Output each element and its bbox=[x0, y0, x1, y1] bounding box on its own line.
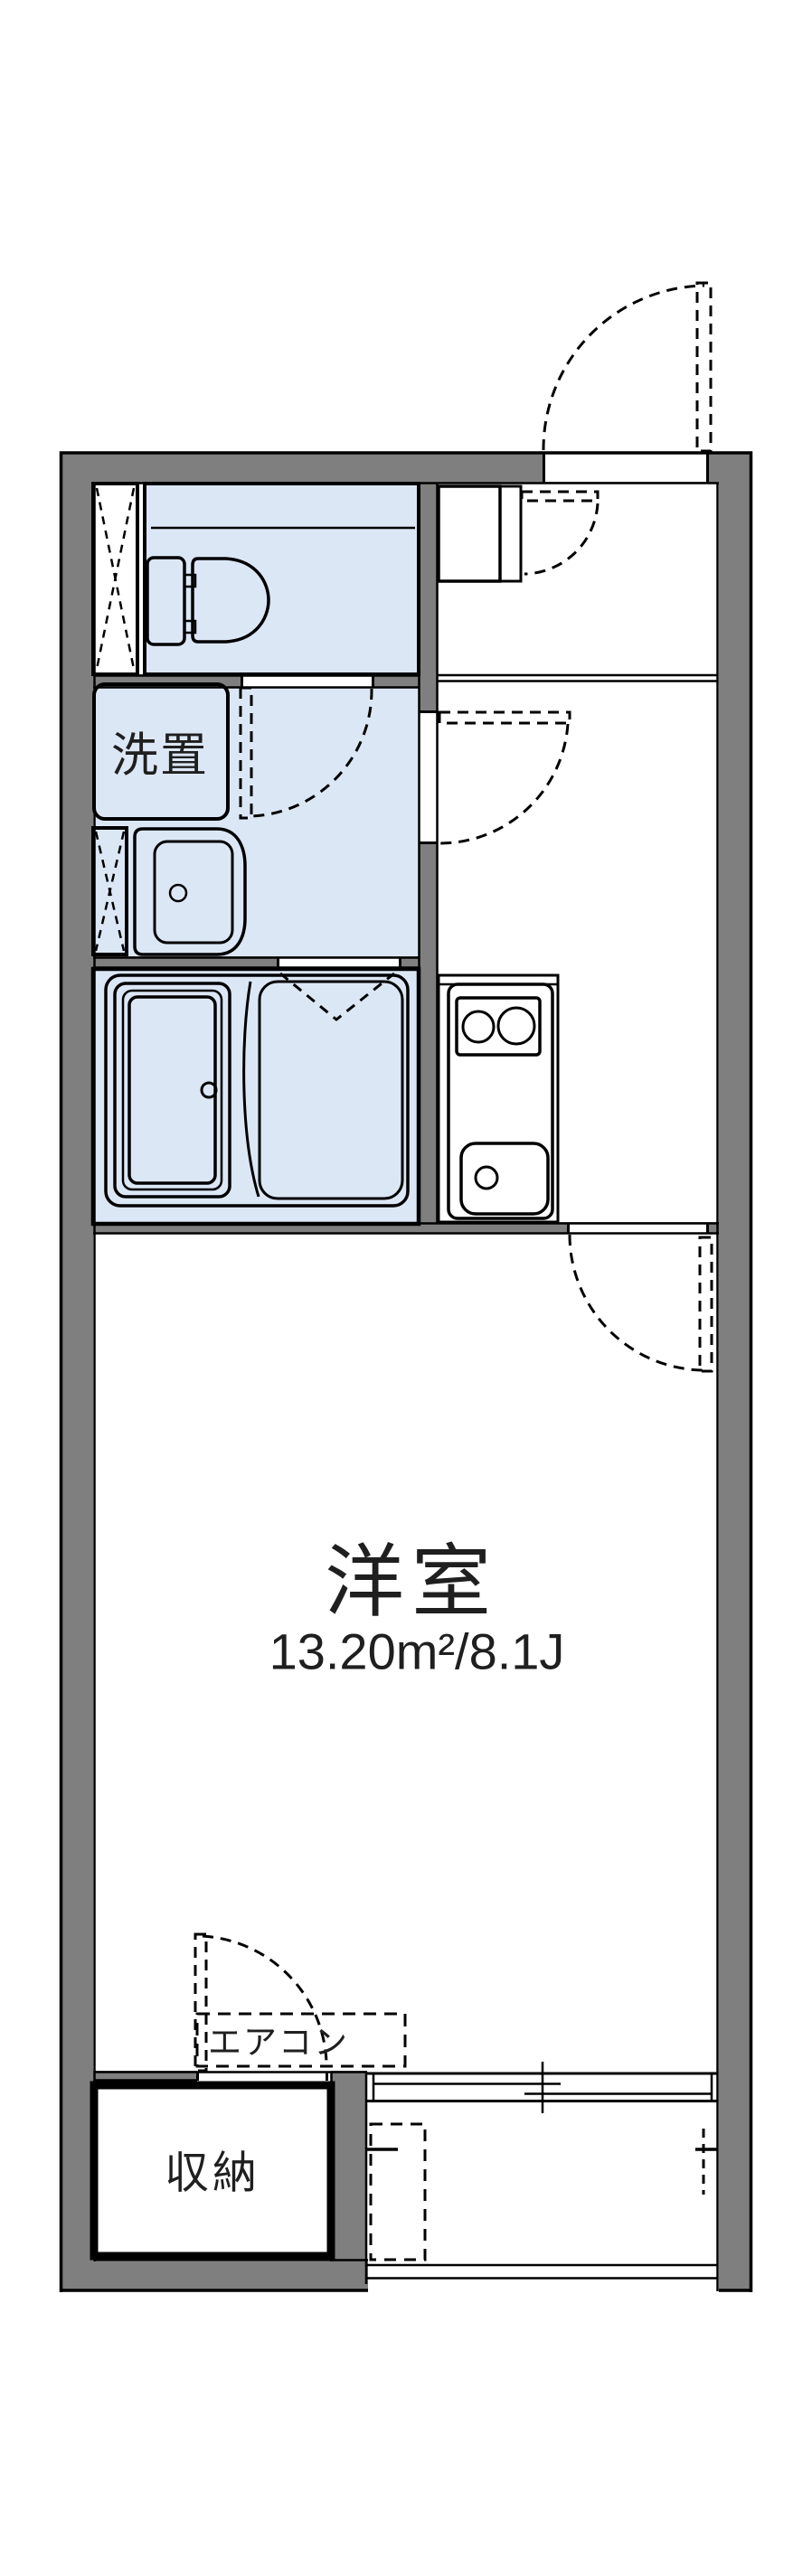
window-sash-lines bbox=[373, 2062, 712, 2113]
kitchen-group bbox=[439, 975, 558, 1222]
entrance-door-swing bbox=[543, 286, 704, 450]
washroom-door-swing bbox=[440, 724, 568, 843]
main-room-label: 洋室 bbox=[325, 1518, 498, 1633]
wall-partition-upper bbox=[419, 483, 438, 711]
stove-burner bbox=[463, 1011, 494, 1042]
shoe-cabinet-counter bbox=[500, 486, 521, 581]
sink-icon bbox=[461, 1143, 548, 1214]
room-door-opening bbox=[569, 1224, 707, 1233]
aircon-label: エアコン bbox=[208, 2015, 349, 2064]
washroom-door-leaf bbox=[439, 712, 570, 723]
room-door-swing bbox=[570, 1235, 706, 1370]
shoe-cabinet bbox=[439, 486, 500, 581]
cabinet-door-leaf bbox=[522, 492, 598, 501]
wall-right bbox=[719, 453, 751, 2291]
wall-pillar bbox=[331, 2071, 367, 2261]
pipe-shaft-hatch bbox=[97, 488, 134, 669]
laundry-label: 洗置 bbox=[111, 718, 209, 785]
storage-label: 収納 bbox=[165, 2138, 260, 2202]
entrance-group bbox=[439, 486, 521, 581]
window-balcony bbox=[366, 2062, 717, 2279]
toilet-door-opening bbox=[242, 676, 373, 687]
balcony-edge bbox=[367, 2265, 717, 2279]
floor-plan: 洗置 洋室 13.20m²/8.1J エアコン 収納 bbox=[0, 0, 812, 2576]
room-door-leaf bbox=[700, 1237, 712, 1371]
entrance-step-line bbox=[438, 675, 717, 682]
stove-burner bbox=[498, 1008, 534, 1044]
cabinet-door-swing bbox=[524, 503, 598, 574]
room-fills bbox=[93, 484, 419, 1224]
bath-door-opening bbox=[279, 958, 400, 967]
main-room-area-label: 13.20m²/8.1J bbox=[269, 1622, 565, 1681]
wall-bottom bbox=[61, 2261, 368, 2291]
sink-drain bbox=[476, 1167, 497, 1189]
floor-plan-drawing bbox=[0, 0, 812, 2576]
entrance-opening bbox=[544, 454, 707, 482]
wall-partition-lower bbox=[419, 843, 438, 1223]
entrance-door-leaf bbox=[697, 283, 711, 451]
balcony-equipment-box bbox=[371, 2124, 425, 2260]
wall-left bbox=[61, 453, 93, 2291]
